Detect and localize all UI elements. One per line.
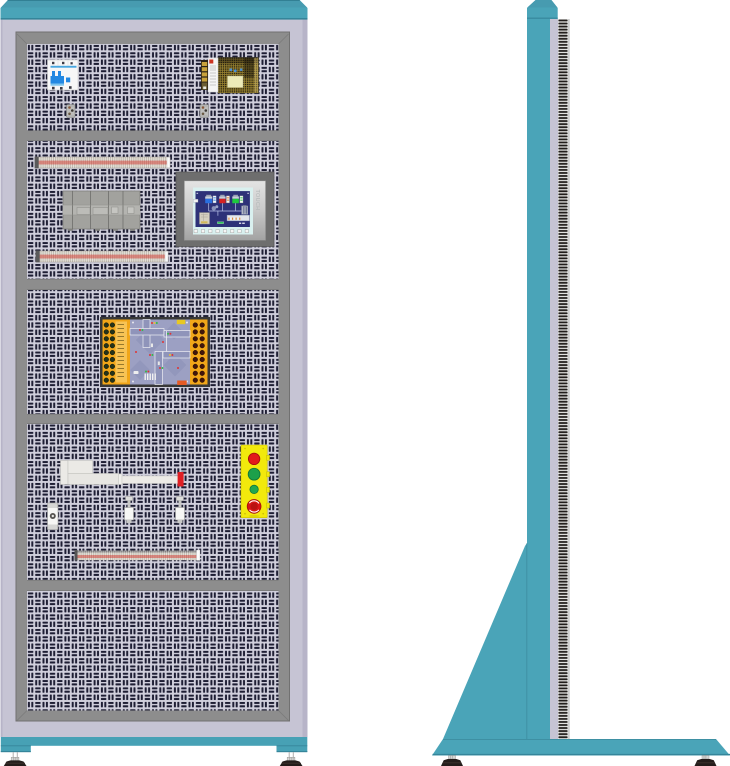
svg-text:TOUCH: TOUCH	[254, 190, 260, 211]
